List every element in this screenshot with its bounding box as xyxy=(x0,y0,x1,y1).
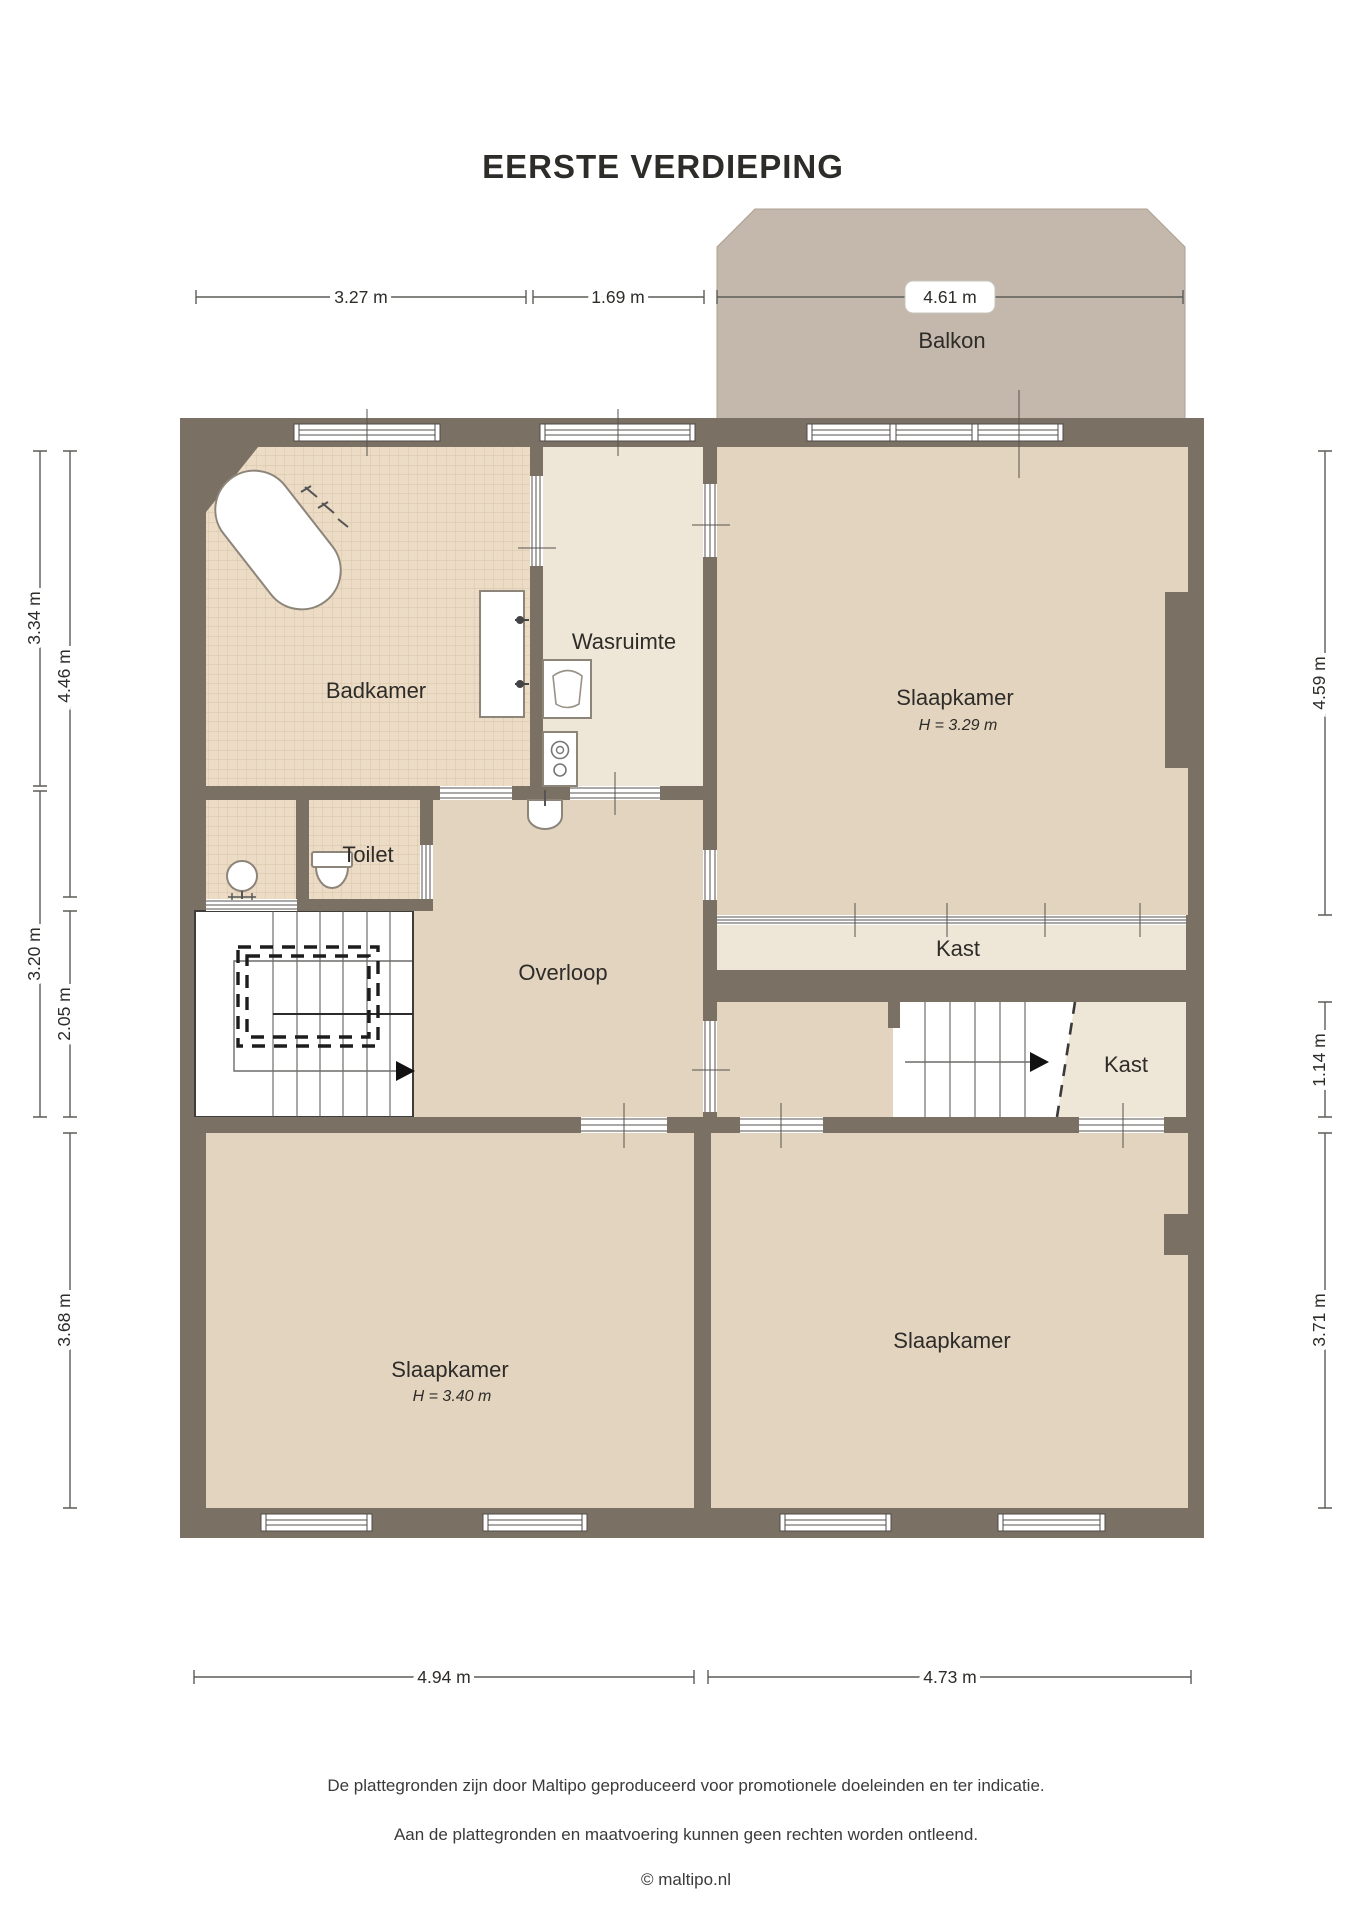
svg-text:2.05 m: 2.05 m xyxy=(54,987,74,1041)
dim-top-2: 1.69 m xyxy=(533,287,704,307)
room-label-badkamer: Badkamer xyxy=(326,678,426,703)
floorplan-page: EERSTE VERDIEPING Balkon xyxy=(0,0,1358,1920)
footer-line-2: Aan de plattegronden en maatvoering kunn… xyxy=(394,1825,978,1844)
svg-text:3.27 m: 3.27 m xyxy=(334,287,388,307)
room-label-slaapkamer-left: Slaapkamer xyxy=(391,1357,508,1382)
wall-niche-top xyxy=(1165,592,1204,768)
door-opening xyxy=(420,845,433,899)
dim-right-1: 4.59 m xyxy=(1309,451,1332,915)
window xyxy=(780,1514,891,1531)
room-height-slaapkamer-top: H = 3.29 m xyxy=(919,717,998,734)
svg-text:4.59 m: 4.59 m xyxy=(1309,656,1329,710)
dim-left-inner-1: 4.46 m xyxy=(54,451,77,897)
wall-niche-bottom xyxy=(1164,1214,1204,1255)
window xyxy=(261,1514,372,1531)
svg-text:4.94 m: 4.94 m xyxy=(417,1667,471,1687)
room-label-kast-top: Kast xyxy=(936,936,980,961)
svg-text:4.46 m: 4.46 m xyxy=(54,649,74,703)
door-opening xyxy=(440,786,512,800)
footer-line-1: De plattegronden zijn door Maltipo gepro… xyxy=(327,1776,1044,1795)
door-opening xyxy=(703,850,717,900)
room-label-wasruimte: Wasruimte xyxy=(572,629,676,654)
room-height-slaapkamer-left: H = 3.40 m xyxy=(413,1388,492,1405)
svg-text:4.61 m: 4.61 m xyxy=(923,287,977,307)
dim-right-3: 3.71 m xyxy=(1309,1133,1332,1508)
dim-bottom-1: 4.94 m xyxy=(194,1667,694,1687)
landing-floor xyxy=(717,1002,893,1117)
interior-window xyxy=(206,899,297,911)
room-label-slaapkamer-right: Slaapkamer xyxy=(893,1328,1010,1353)
floor-plan: EERSTE VERDIEPING Balkon xyxy=(0,0,1358,1920)
pedestal-sink-icon xyxy=(227,861,257,900)
room-label-kast-mid: Kast xyxy=(1104,1052,1148,1077)
room-label-toilet: Toilet xyxy=(342,842,393,867)
window xyxy=(483,1514,587,1531)
svg-text:3.20 m: 3.20 m xyxy=(24,927,44,981)
svg-text:3.68 m: 3.68 m xyxy=(54,1293,74,1347)
svg-text:1.14 m: 1.14 m xyxy=(1309,1033,1329,1087)
svg-text:1.69 m: 1.69 m xyxy=(591,287,645,307)
room-label-slaapkamer-top: Slaapkamer xyxy=(896,685,1013,710)
dim-left-inner-2: 2.05 m xyxy=(54,911,77,1117)
vanity-icon xyxy=(480,591,524,717)
dim-left-outer-2: 3.20 m xyxy=(24,791,47,1117)
overloop-floor xyxy=(413,800,703,1117)
room-label-balkon: Balkon xyxy=(918,328,985,353)
svg-text:3.34 m: 3.34 m xyxy=(24,591,44,645)
dim-left-inner-3: 3.68 m xyxy=(54,1133,77,1508)
washer-icon xyxy=(543,660,591,718)
dim-right-2: 1.14 m xyxy=(1309,1002,1332,1117)
dim-bottom-2: 4.73 m xyxy=(708,1667,1191,1687)
svg-text:4.73 m: 4.73 m xyxy=(923,1667,977,1687)
slaapkamer-right-floor xyxy=(711,1133,1188,1508)
svg-text:3.71 m: 3.71 m xyxy=(1309,1293,1329,1347)
dim-top-1: 3.27 m xyxy=(196,287,526,307)
footer-copyright: © maltipo.nl xyxy=(641,1870,731,1889)
balkon-area: Balkon xyxy=(717,209,1185,420)
slaapkamer-left-floor xyxy=(206,1133,694,1508)
footer: De plattegronden zijn door Maltipo gepro… xyxy=(327,1776,1044,1889)
room-label-overloop: Overloop xyxy=(518,960,607,985)
dim-left-outer-1: 3.34 m xyxy=(24,451,47,786)
page-title: EERSTE VERDIEPING xyxy=(482,148,844,185)
slaapkamer-top-floor xyxy=(717,447,1188,915)
window xyxy=(998,1514,1105,1531)
